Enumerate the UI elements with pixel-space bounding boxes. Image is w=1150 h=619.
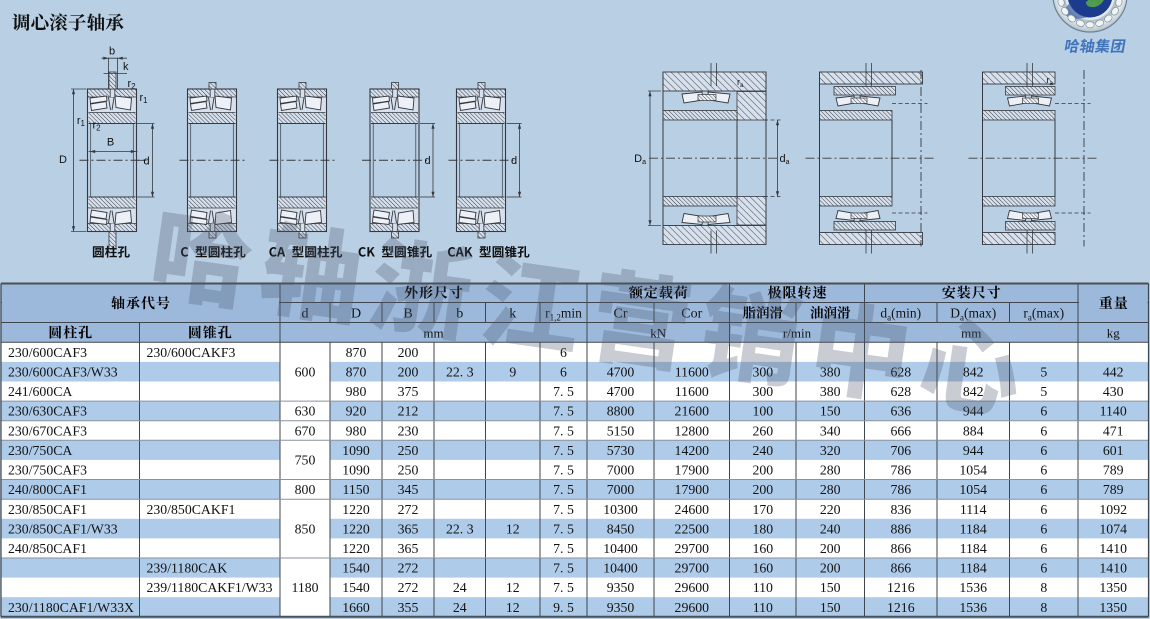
svg-text:200: 200 <box>820 541 841 556</box>
svg-text:1220: 1220 <box>342 541 370 556</box>
svg-text:6: 6 <box>1040 423 1047 438</box>
svg-text:442: 442 <box>1103 365 1124 380</box>
svg-text:29600: 29600 <box>675 600 710 615</box>
svg-text:250: 250 <box>398 463 419 478</box>
svg-text:5: 5 <box>1040 365 1047 380</box>
svg-text:272: 272 <box>398 561 419 576</box>
svg-text:200: 200 <box>752 463 773 478</box>
svg-text:920: 920 <box>346 404 367 419</box>
svg-text:110: 110 <box>753 580 773 595</box>
svg-text:21600: 21600 <box>675 404 710 419</box>
svg-text:1184: 1184 <box>960 541 987 556</box>
svg-text:8: 8 <box>1040 600 1047 615</box>
svg-text:230/670CAF3: 230/670CAF3 <box>8 423 87 438</box>
svg-text:7000: 7000 <box>607 463 635 478</box>
svg-text:230/600CAF3: 230/600CAF3 <box>8 345 87 360</box>
svg-text:230/850CAKF1: 230/850CAKF1 <box>147 502 236 517</box>
svg-text:1114: 1114 <box>960 502 987 517</box>
svg-text:1536: 1536 <box>959 580 987 595</box>
svg-text:8450: 8450 <box>607 521 635 536</box>
svg-text:D: D <box>351 307 361 322</box>
svg-text:11600: 11600 <box>675 384 709 399</box>
svg-text:1054: 1054 <box>959 463 987 478</box>
svg-text:200: 200 <box>820 561 841 576</box>
svg-text:1090: 1090 <box>342 463 370 478</box>
svg-text:230/850CAF1/W33: 230/850CAF1/W33 <box>8 521 118 536</box>
svg-text:471: 471 <box>1103 423 1124 438</box>
svg-text:12800: 12800 <box>675 423 710 438</box>
svg-text:k: k <box>123 61 129 73</box>
svg-text:1220: 1220 <box>342 521 370 536</box>
svg-text:6: 6 <box>1040 404 1047 419</box>
svg-text:272: 272 <box>398 580 419 595</box>
svg-text:1090: 1090 <box>342 443 370 458</box>
svg-text:4700: 4700 <box>607 384 635 399</box>
svg-text:1220: 1220 <box>342 502 370 517</box>
svg-text:d: d <box>511 155 517 167</box>
svg-text:340: 340 <box>820 423 841 438</box>
svg-text:160: 160 <box>752 561 773 576</box>
svg-text:800: 800 <box>295 482 316 497</box>
svg-text:4700: 4700 <box>607 365 635 380</box>
svg-text:150: 150 <box>820 600 841 615</box>
svg-text:9. 5: 9. 5 <box>553 600 574 615</box>
svg-text:230/600CAKF3: 230/600CAKF3 <box>147 345 236 360</box>
svg-text:636: 636 <box>890 404 911 419</box>
svg-text:6: 6 <box>1040 443 1047 458</box>
svg-text:944: 944 <box>963 443 984 458</box>
svg-text:670: 670 <box>295 423 316 438</box>
svg-text:5150: 5150 <box>607 423 635 438</box>
svg-text:1660: 1660 <box>342 600 370 615</box>
svg-text:239/1180CAK: 239/1180CAK <box>147 561 228 576</box>
svg-text:212: 212 <box>398 404 419 419</box>
svg-text:1150: 1150 <box>342 482 369 497</box>
svg-text:170: 170 <box>752 502 773 517</box>
svg-text:866: 866 <box>890 561 911 576</box>
svg-text:9: 9 <box>509 365 516 380</box>
svg-text:7. 5: 7. 5 <box>553 502 574 517</box>
svg-text:220: 220 <box>820 502 841 517</box>
svg-text:250: 250 <box>398 443 419 458</box>
svg-text:7. 5: 7. 5 <box>553 561 574 576</box>
svg-text:d: d <box>424 155 430 167</box>
svg-text:10400: 10400 <box>603 541 638 556</box>
svg-text:980: 980 <box>346 423 367 438</box>
svg-text:842: 842 <box>963 365 984 380</box>
svg-text:100: 100 <box>752 404 773 419</box>
svg-text:1540: 1540 <box>342 580 370 595</box>
svg-text:10300: 10300 <box>603 502 638 517</box>
svg-text:7. 5: 7. 5 <box>553 384 574 399</box>
svg-text:240: 240 <box>752 443 773 458</box>
svg-text:870: 870 <box>346 345 367 360</box>
svg-text:230: 230 <box>398 423 419 438</box>
svg-text:6: 6 <box>1040 463 1047 478</box>
svg-text:7. 5: 7. 5 <box>553 404 574 419</box>
svg-text:29600: 29600 <box>675 580 710 595</box>
svg-text:884: 884 <box>963 423 984 438</box>
svg-text:7. 5: 7. 5 <box>553 443 574 458</box>
svg-text:365: 365 <box>398 521 419 536</box>
svg-text:666: 666 <box>890 423 911 438</box>
svg-text:9350: 9350 <box>607 580 635 595</box>
svg-text:886: 886 <box>890 521 911 536</box>
svg-text:375: 375 <box>398 384 419 399</box>
svg-text:6: 6 <box>560 365 567 380</box>
svg-text:7. 5: 7. 5 <box>553 463 574 478</box>
svg-text:1410: 1410 <box>1099 561 1127 576</box>
svg-text:789: 789 <box>1103 482 1124 497</box>
svg-text:22. 3: 22. 3 <box>446 365 474 380</box>
svg-text:628: 628 <box>890 384 911 399</box>
svg-text:kg: kg <box>1107 325 1121 340</box>
svg-text:1092: 1092 <box>1099 502 1127 517</box>
svg-text:836: 836 <box>890 502 911 517</box>
svg-text:7000: 7000 <box>607 482 635 497</box>
svg-text:7. 5: 7. 5 <box>553 541 574 556</box>
svg-text:1216: 1216 <box>887 600 915 615</box>
svg-text:789: 789 <box>1103 463 1124 478</box>
svg-text:9350: 9350 <box>607 600 635 615</box>
svg-text:6: 6 <box>1040 502 1047 517</box>
svg-text:17900: 17900 <box>675 463 710 478</box>
svg-text:240/850CAF1: 240/850CAF1 <box>8 541 87 556</box>
svg-text:22. 3: 22. 3 <box>446 521 474 536</box>
svg-text:6: 6 <box>1040 521 1047 536</box>
svg-text:1540: 1540 <box>342 561 370 576</box>
svg-text:d: d <box>144 156 150 168</box>
svg-text:630: 630 <box>295 404 316 419</box>
svg-text:1074: 1074 <box>1099 521 1127 536</box>
svg-text:1350: 1350 <box>1099 600 1127 615</box>
svg-text:230/600CAF3/W33: 230/600CAF3/W33 <box>8 365 118 380</box>
svg-text:7. 5: 7. 5 <box>553 423 574 438</box>
svg-text:8800: 8800 <box>607 404 635 419</box>
svg-text:980: 980 <box>346 384 367 399</box>
svg-text:786: 786 <box>890 463 911 478</box>
svg-text:1184: 1184 <box>960 521 987 536</box>
svg-text:365: 365 <box>398 541 419 556</box>
svg-text:24: 24 <box>453 600 467 615</box>
svg-text:1140: 1140 <box>1100 404 1127 419</box>
svg-text:22500: 22500 <box>675 521 710 536</box>
svg-text:240: 240 <box>820 521 841 536</box>
svg-text:380: 380 <box>820 384 841 399</box>
svg-text:600: 600 <box>295 365 316 380</box>
svg-text:850: 850 <box>295 521 316 536</box>
svg-text:241/600CA: 241/600CA <box>8 384 72 399</box>
svg-text:280: 280 <box>820 482 841 497</box>
svg-text:601: 601 <box>1103 443 1124 458</box>
svg-text:160: 160 <box>752 541 773 556</box>
svg-text:200: 200 <box>752 482 773 497</box>
svg-text:230/1180CAF1/W33X: 230/1180CAF1/W33X <box>8 600 134 615</box>
svg-text:870: 870 <box>346 365 367 380</box>
svg-text:12: 12 <box>506 580 520 595</box>
svg-text:14200: 14200 <box>675 443 710 458</box>
svg-text:6: 6 <box>1040 561 1047 576</box>
svg-text:b: b <box>109 46 115 58</box>
svg-text:300: 300 <box>752 384 773 399</box>
svg-text:320: 320 <box>820 443 841 458</box>
svg-text:230/850CAF1: 230/850CAF1 <box>8 502 87 517</box>
svg-text:8: 8 <box>1040 580 1047 595</box>
svg-text:5: 5 <box>1040 384 1047 399</box>
svg-text:230/750CAF3: 230/750CAF3 <box>8 463 87 478</box>
svg-text:200: 200 <box>398 365 419 380</box>
svg-text:da(min): da(min) <box>880 306 921 323</box>
svg-text:150: 150 <box>820 404 841 419</box>
svg-text:1410: 1410 <box>1099 541 1127 556</box>
svg-text:750: 750 <box>295 453 316 468</box>
svg-text:200: 200 <box>398 345 419 360</box>
svg-text:B: B <box>107 137 114 149</box>
svg-text:239/1180CAKF1/W33: 239/1180CAKF1/W33 <box>147 580 273 595</box>
svg-text:11600: 11600 <box>675 365 709 380</box>
svg-text:29700: 29700 <box>675 561 710 576</box>
svg-text:6: 6 <box>1040 541 1047 556</box>
svg-text:1184: 1184 <box>960 561 987 576</box>
svg-text:706: 706 <box>890 443 911 458</box>
svg-text:1054: 1054 <box>959 482 987 497</box>
svg-text:17900: 17900 <box>675 482 710 497</box>
svg-text:230/750CA: 230/750CA <box>8 443 72 458</box>
svg-text:180: 180 <box>752 521 773 536</box>
svg-text:866: 866 <box>890 541 911 556</box>
svg-text:240/800CAF1: 240/800CAF1 <box>8 482 87 497</box>
svg-text:12: 12 <box>506 600 520 615</box>
svg-text:24600: 24600 <box>675 502 710 517</box>
svg-text:5730: 5730 <box>607 443 635 458</box>
svg-text:280: 280 <box>820 463 841 478</box>
svg-text:12: 12 <box>506 521 520 536</box>
svg-text:1536: 1536 <box>959 600 987 615</box>
svg-text:24: 24 <box>453 580 467 595</box>
svg-text:7. 5: 7. 5 <box>553 580 574 595</box>
svg-text:842: 842 <box>963 384 984 399</box>
svg-text:786: 786 <box>890 482 911 497</box>
svg-text:260: 260 <box>752 423 773 438</box>
svg-text:355: 355 <box>398 600 419 615</box>
svg-text:6: 6 <box>1040 482 1047 497</box>
svg-text:Da(max): Da(max) <box>950 306 996 323</box>
svg-text:10400: 10400 <box>603 561 638 576</box>
svg-text:150: 150 <box>820 580 841 595</box>
svg-text:7. 5: 7. 5 <box>553 521 574 536</box>
svg-text:230/630CAF3: 230/630CAF3 <box>8 404 87 419</box>
svg-text:345: 345 <box>398 482 419 497</box>
svg-text:110: 110 <box>753 600 773 615</box>
svg-text:29700: 29700 <box>675 541 710 556</box>
svg-text:1216: 1216 <box>887 580 915 595</box>
svg-text:D: D <box>59 154 67 166</box>
svg-text:1350: 1350 <box>1099 580 1127 595</box>
svg-text:430: 430 <box>1103 384 1124 399</box>
svg-text:7. 5: 7. 5 <box>553 482 574 497</box>
svg-text:272: 272 <box>398 502 419 517</box>
svg-text:1180: 1180 <box>291 580 318 595</box>
